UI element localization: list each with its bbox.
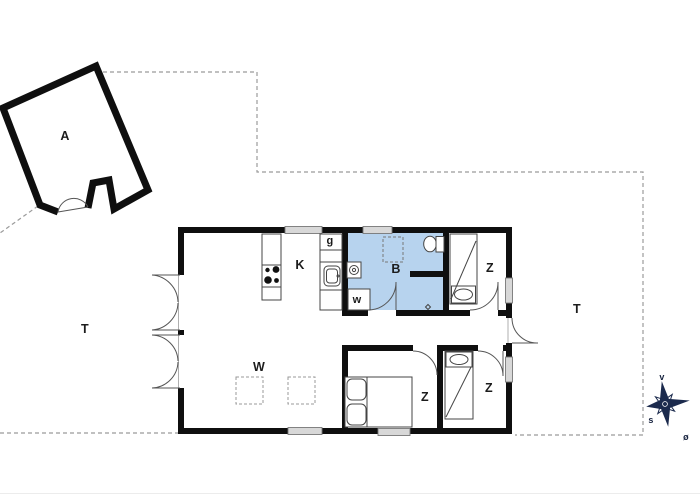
bathroom-bottom-wall	[396, 310, 470, 316]
left-wall	[178, 330, 184, 335]
bunk-bed	[450, 234, 477, 304]
bedroom-label: Z	[485, 381, 493, 395]
window	[363, 227, 392, 234]
top-wall	[178, 227, 285, 233]
bedroom-wall	[443, 345, 478, 351]
wardrobe-label: g	[326, 235, 333, 247]
utility-label: w	[353, 294, 362, 306]
boundary-line-diagonal	[0, 206, 38, 233]
french-door-arc	[152, 362, 178, 388]
window	[506, 278, 513, 303]
right-wall	[506, 227, 512, 278]
image-edge-line	[0, 493, 700, 494]
left-wall	[178, 388, 184, 434]
bedroom-wall	[498, 310, 512, 316]
top-wall	[322, 227, 363, 233]
bottom-wall	[322, 428, 378, 434]
table-outline	[236, 377, 263, 404]
floor-plan-page: A K g B w Z Z Z W T T v s ø	[0, 0, 700, 500]
bedroom-door-arc	[413, 351, 437, 375]
table-outline	[288, 377, 315, 404]
toilet-partition-wall	[410, 271, 443, 277]
living-room-label: W	[253, 360, 265, 374]
terrace-label: T	[81, 322, 89, 336]
terrace-label: T	[573, 302, 581, 316]
double-bed	[345, 377, 412, 427]
washing-machine-icon	[347, 262, 361, 278]
compass-east-label: ø	[683, 432, 689, 442]
annex-walls	[3, 66, 148, 212]
window	[288, 428, 322, 435]
french-door-arc	[152, 275, 178, 302]
french-door-arc	[152, 303, 178, 330]
top-wall	[392, 227, 512, 233]
bedroom-door-arc	[478, 351, 503, 376]
bedroom-wall	[503, 345, 512, 351]
bottom-wall	[410, 428, 512, 434]
annex-label: A	[60, 129, 69, 143]
toilet-icon	[424, 236, 444, 252]
bedroom-wall	[342, 345, 413, 351]
entry-door-arc	[512, 318, 538, 343]
window	[506, 357, 513, 382]
kitchen-label: K	[295, 258, 304, 272]
right-wall	[506, 382, 512, 434]
bunk-bed	[445, 351, 473, 419]
compass-west-label: v	[659, 372, 664, 382]
bathroom-bottom-wall	[342, 310, 368, 316]
kitchen-counter	[262, 234, 281, 300]
window	[285, 227, 322, 234]
bottom-wall	[178, 428, 288, 434]
french-door-arc	[152, 335, 178, 361]
floor-plan-drawing	[0, 0, 700, 500]
left-wall	[178, 227, 184, 275]
compass-south-label: s	[648, 415, 653, 425]
window	[378, 429, 410, 436]
bathroom-label: B	[391, 262, 400, 276]
annex-building	[3, 66, 148, 212]
bedroom-label: Z	[421, 390, 429, 404]
bedroom-divider-wall	[437, 345, 443, 434]
bedroom-label: Z	[486, 261, 494, 275]
compass-center	[662, 401, 667, 406]
